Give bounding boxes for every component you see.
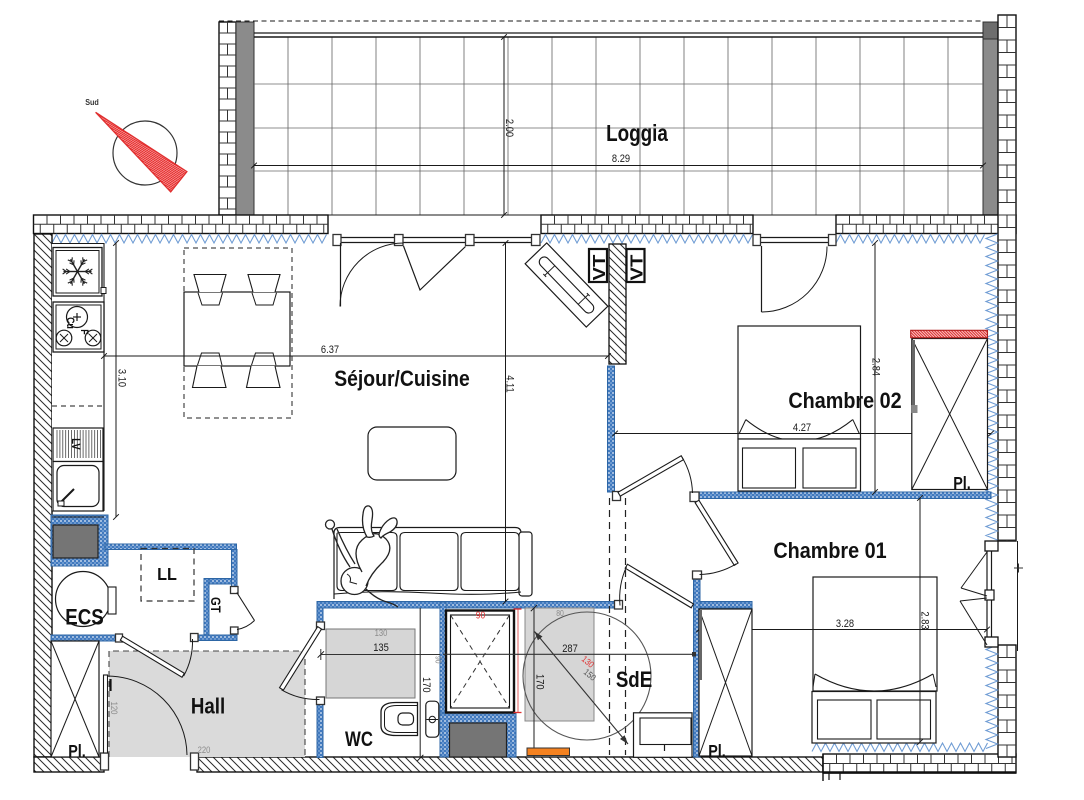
svg-text:4.11: 4.11 <box>503 375 515 393</box>
svg-text:Pl.: Pl. <box>68 742 86 762</box>
svg-text:F: F <box>78 329 90 334</box>
svg-text:130: 130 <box>375 627 388 638</box>
svg-text:220: 220 <box>198 744 211 755</box>
svg-text:90: 90 <box>433 656 443 664</box>
svg-text:LV: LV <box>69 438 82 450</box>
svg-text:6.37: 6.37 <box>321 344 339 356</box>
svg-text:Sud: Sud <box>85 97 99 107</box>
svg-text:Loggia: Loggia <box>606 121 668 146</box>
svg-text:3.28: 3.28 <box>836 618 854 630</box>
svg-text:287: 287 <box>562 643 578 655</box>
svg-text:WC: WC <box>345 728 373 751</box>
svg-text:Pl.: Pl. <box>708 742 726 762</box>
svg-text:Pl.: Pl. <box>953 474 971 494</box>
svg-text:ECS: ECS <box>65 606 103 630</box>
svg-text:Hall: Hall <box>191 695 225 719</box>
svg-text:80: 80 <box>556 608 564 618</box>
svg-text:170: 170 <box>533 674 545 690</box>
svg-text:135: 135 <box>373 642 389 654</box>
svg-text:GT: GT <box>208 597 223 613</box>
svg-text:Cu: Cu <box>64 317 76 329</box>
svg-text:4.27: 4.27 <box>793 422 811 434</box>
svg-text:Séjour/Cuisine: Séjour/Cuisine <box>334 367 470 391</box>
svg-text:8.29: 8.29 <box>612 153 630 165</box>
svg-text:120: 120 <box>109 702 120 715</box>
svg-text:170: 170 <box>420 677 432 693</box>
svg-text:VT: VT <box>590 254 610 280</box>
svg-text:VT: VT <box>627 254 647 280</box>
svg-text:2.00: 2.00 <box>503 119 515 137</box>
svg-text:3.10: 3.10 <box>115 369 127 387</box>
svg-text:Chambre 01: Chambre 01 <box>773 539 887 563</box>
svg-text:SdE: SdE <box>616 669 652 693</box>
svg-text:LL: LL <box>157 564 177 584</box>
svg-text:Chambre 02: Chambre 02 <box>788 389 901 413</box>
svg-text:90: 90 <box>476 610 485 621</box>
